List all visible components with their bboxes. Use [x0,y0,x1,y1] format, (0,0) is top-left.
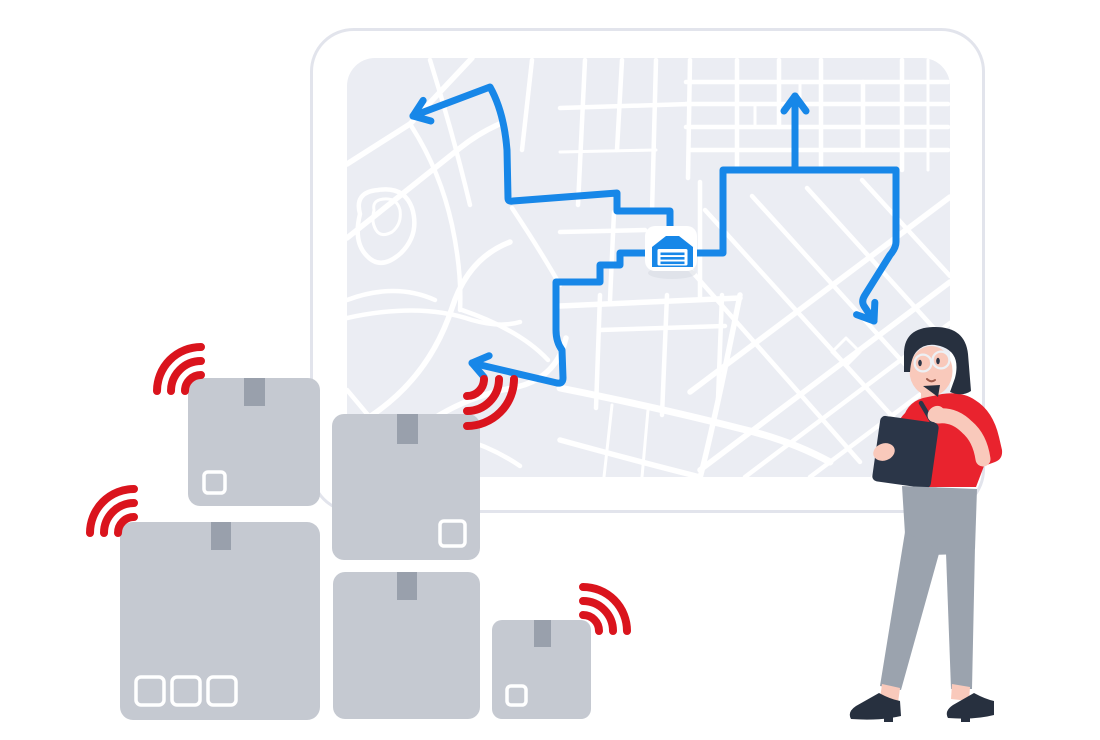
right-eye [936,358,940,364]
box-tape [397,572,417,600]
box-tape [211,522,231,550]
pants [880,486,977,690]
box-tape [534,620,551,647]
box-tape [244,378,265,406]
box-tape [397,414,418,444]
package-box-5 [492,620,591,719]
warehouse-marker [645,226,697,279]
illustration-canvas [0,0,1100,740]
logistics-illustration [0,0,1100,740]
wifi-signal-4 [583,587,627,631]
package-box-4 [333,572,480,719]
package-box-3 [120,522,320,720]
package-box-2 [332,414,480,560]
left-eye [918,360,922,366]
package-box-1 [188,378,320,506]
